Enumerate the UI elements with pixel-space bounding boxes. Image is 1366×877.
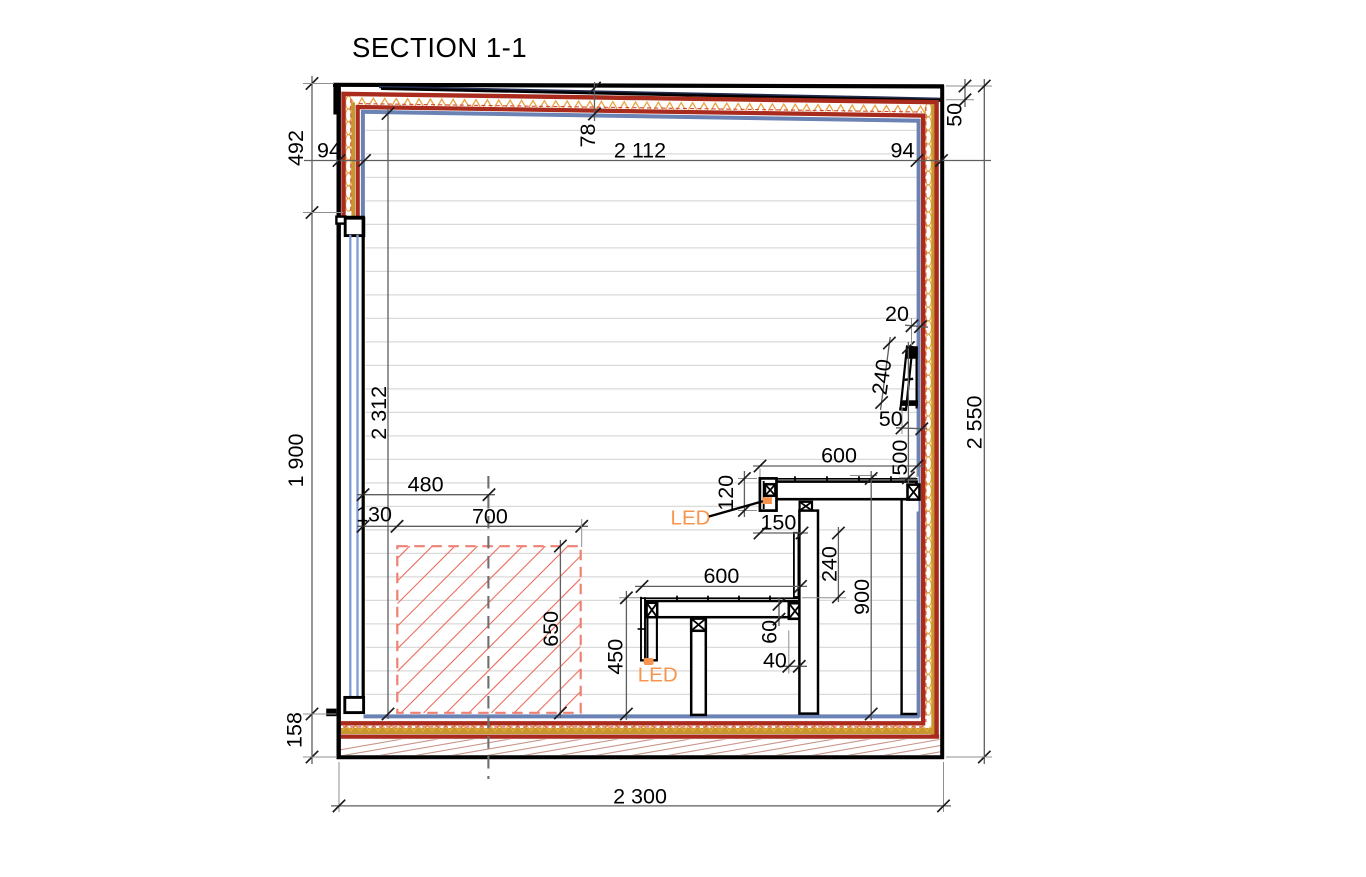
svg-text:78: 78	[576, 124, 600, 148]
svg-text:1 900: 1 900	[284, 434, 308, 488]
svg-text:130: 130	[356, 503, 392, 527]
svg-text:650: 650	[539, 611, 563, 647]
svg-text:700: 700	[472, 505, 508, 529]
svg-text:600: 600	[821, 444, 857, 468]
svg-text:SECTION 1-1: SECTION 1-1	[352, 32, 527, 63]
svg-text:40: 40	[763, 649, 787, 673]
svg-text:450: 450	[604, 639, 628, 675]
svg-text:2 112: 2 112	[614, 139, 666, 163]
svg-text:600: 600	[703, 564, 739, 588]
svg-text:LED: LED	[671, 507, 711, 530]
svg-text:LED: LED	[638, 664, 678, 687]
svg-text:20: 20	[885, 302, 909, 326]
svg-text:2 300: 2 300	[613, 784, 667, 808]
svg-text:50: 50	[879, 407, 903, 431]
svg-text:900: 900	[850, 579, 874, 615]
svg-text:94: 94	[891, 139, 915, 163]
svg-text:120: 120	[714, 475, 738, 511]
svg-text:150: 150	[760, 510, 796, 534]
svg-text:500: 500	[888, 440, 912, 476]
svg-text:50: 50	[942, 103, 966, 127]
svg-text:480: 480	[408, 473, 444, 497]
svg-text:2 312: 2 312	[367, 386, 391, 440]
svg-text:2 550: 2 550	[962, 395, 986, 449]
svg-text:158: 158	[283, 712, 307, 748]
svg-text:60: 60	[758, 620, 782, 644]
svg-text:240: 240	[818, 546, 842, 582]
svg-text:240: 240	[868, 358, 897, 397]
svg-text:94: 94	[317, 139, 341, 163]
